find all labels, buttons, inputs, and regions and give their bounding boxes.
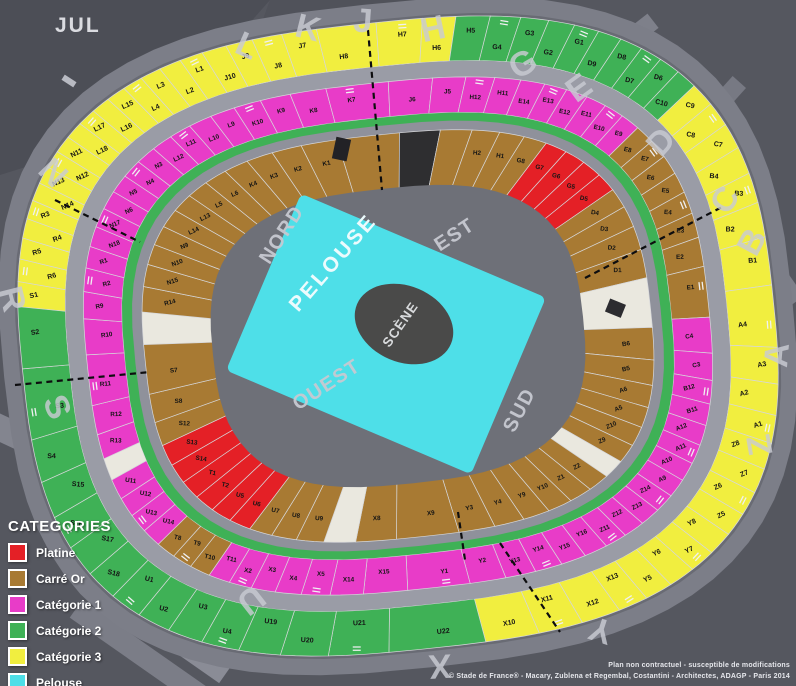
section-label: E5 [661,187,670,195]
section-label: D3 [600,225,609,233]
footer: Plan non contractuel - susceptible de mo… [449,660,790,682]
seat-section-S2[interactable] [16,302,71,370]
section-label: S8 [175,398,183,405]
section-label: G4 [492,44,502,52]
section-label: D2 [607,244,616,251]
section-label: G3 [525,30,535,38]
stadium-map: S1R6R5R4R3N14N13N12N11L18L17L16L15L4L3L2… [0,0,796,686]
section-label: S15 [72,481,85,489]
gate-letter-A: A [757,341,796,369]
section-label: S13 [186,438,198,446]
section-label: S7 [170,367,179,375]
section-label: H5 [466,28,475,35]
section-label: B2 [726,226,735,233]
section-label: X9 [427,509,436,517]
section-label: U21 [353,620,366,627]
section-label: U9 [315,515,324,523]
section-label: U20 [301,637,314,645]
section-label: X8 [373,515,381,522]
section-label: X15 [378,568,390,576]
legend-label: Pelouse [36,676,82,686]
section-label: U8 [291,512,301,520]
section-label: G2 [543,49,553,57]
legend-label: Catégorie 2 [36,624,101,638]
legend-swatch-pelouse [8,673,27,686]
seat-section-K7[interactable] [326,82,392,124]
section-label: S2 [30,329,40,337]
seat-section-Y1[interactable] [404,549,470,591]
legend-item-cat-1: Catégorie 1 [8,595,111,614]
section-label: U22 [437,628,451,636]
legend-label: Platine [36,546,75,560]
legend-swatch-platine [8,543,27,562]
section-label: B4 [709,173,719,181]
section-label: X5 [317,571,326,578]
section-label: H8 [339,53,349,61]
legend-label: Catégorie 1 [36,598,101,612]
legend-item-cat-3: Catégorie 3 [8,647,111,666]
legend-swatch-carre-or [8,569,27,588]
section-label: H1 [496,152,506,160]
section-label: E2 [676,254,684,261]
section-label: X4 [289,575,298,583]
section-label: C7 [713,141,723,149]
section-label: H11 [497,89,509,97]
section-label: D1 [613,267,622,274]
section-label: Y1 [440,568,449,576]
legend-item-carre-or: Carré Or [8,569,111,588]
section-label: E1 [686,284,695,292]
section-label: H7 [398,31,408,39]
section-label: C4 [685,333,694,341]
month-label: JUL [55,14,101,38]
section-label: H2 [473,149,482,157]
legend-swatch-cat-3 [8,647,27,666]
legend-label: Catégorie 3 [36,650,101,664]
section-label: H12 [469,94,481,102]
legend-label: Carré Or [36,572,85,586]
seat-section-E1[interactable] [666,266,710,321]
section-label: J5 [444,89,452,96]
footer-note: Plan non contractuel - susceptible de mo… [449,660,790,671]
legend-title: CATEGORIES [8,518,111,535]
legend-item-platine: Platine [8,543,111,562]
section-label: R13 [110,437,122,444]
stadium-seating-map: S1R6R5R4R3N14N13N12N11L18L17L16L15L4L3L2… [0,0,796,686]
legend-item-cat-2: Catégorie 2 [8,621,111,640]
section-label: X14 [343,576,355,583]
section-label: R12 [110,411,122,418]
gate-letter-J: J [352,1,374,40]
legend: CATEGORIES PlatineCarré OrCatégorie 1Cat… [8,518,111,686]
section-label: S12 [179,420,191,428]
section-label: S4 [47,453,56,460]
legend-item-pelouse: Pelouse [8,673,111,686]
section-label: E4 [664,209,673,217]
section-label: R11 [100,380,112,388]
section-label: J6 [408,96,416,104]
section-label: A4 [738,321,748,329]
legend-swatch-cat-2 [8,621,27,640]
legend-swatch-cat-1 [8,595,27,614]
section-label: K7 [347,96,356,104]
footer-credit: © Stade de France® - Macary, Zublena et … [449,671,790,682]
